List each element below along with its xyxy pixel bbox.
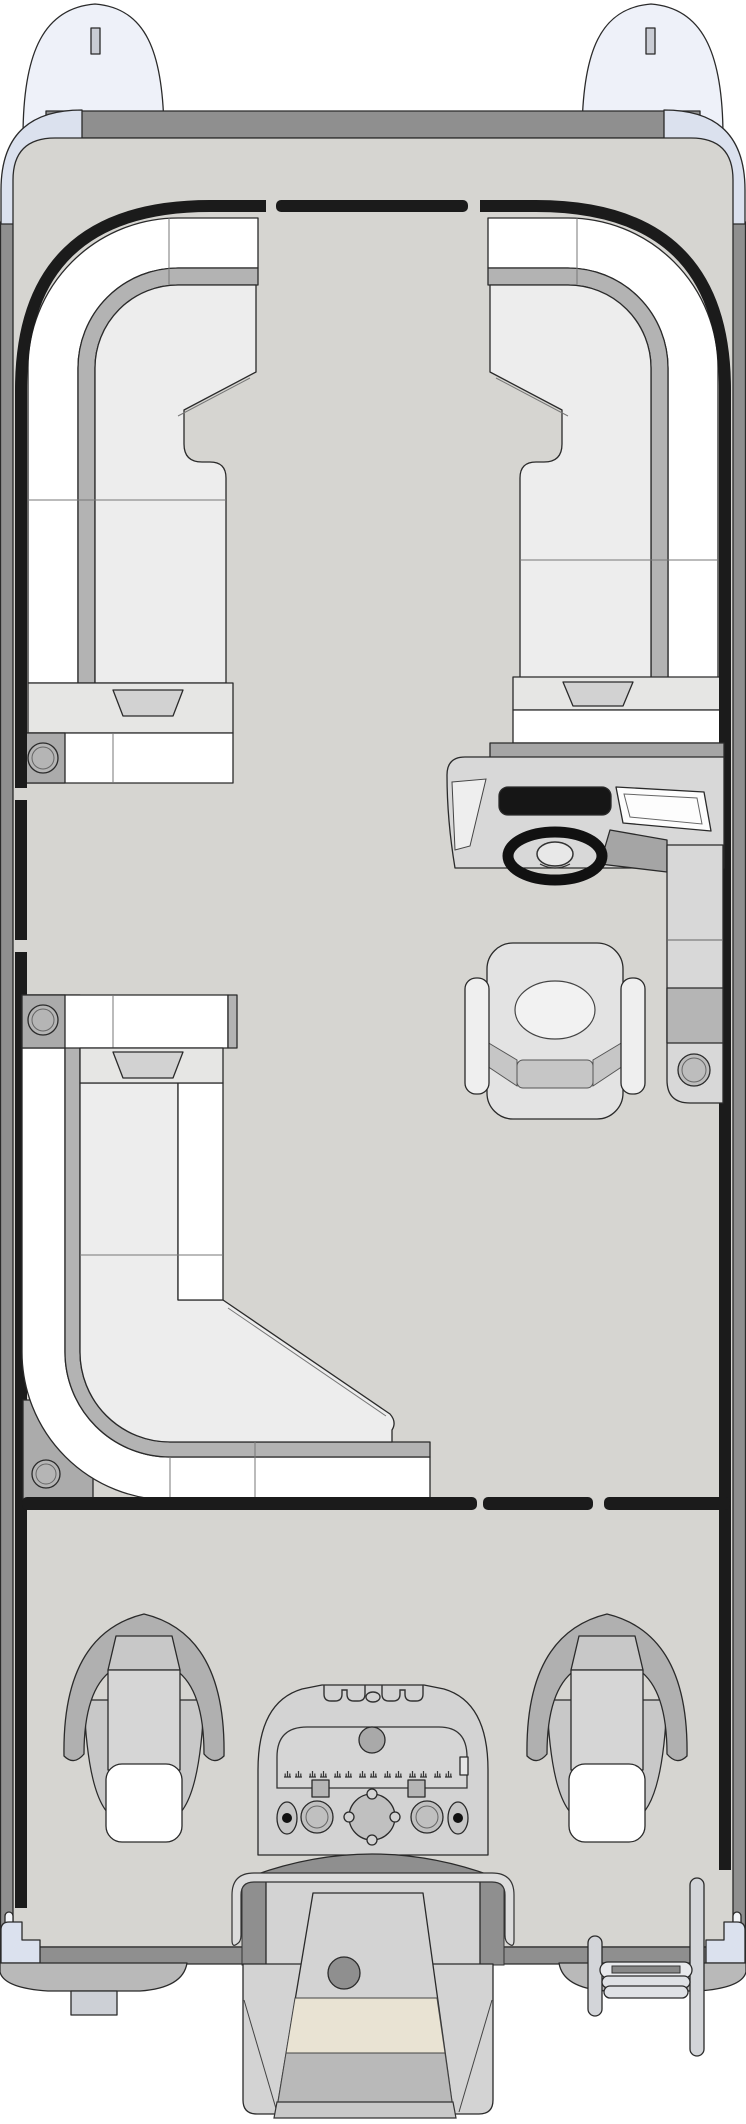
- bow-lounge-starboard-step: [563, 682, 633, 706]
- ladder-step-3: [604, 1986, 688, 1998]
- ladder-step-slot: [612, 1966, 680, 1973]
- motor-leg-band-beige: [286, 1998, 445, 2053]
- captain-chair-headrest: [515, 981, 595, 1039]
- bow-lounge-port-step: [113, 690, 183, 716]
- pontoon-tube-port: [1, 222, 14, 1963]
- aft-rail-segment-3: [604, 1497, 730, 1510]
- panel-latch: [460, 1757, 468, 1775]
- hub-notch-w: [344, 1812, 354, 1822]
- cowl-cap: [359, 1727, 385, 1753]
- hub-notch-e: [390, 1812, 400, 1822]
- aft-rail-segment-2: [483, 1497, 593, 1510]
- helm-console-top-band: [490, 743, 724, 758]
- fishing-seat-headrest: [108, 1636, 180, 1670]
- aft-gate-rails: [22, 1497, 730, 1510]
- motor-knob-left-dot: [282, 1813, 292, 1823]
- hub-notch-n: [367, 1789, 377, 1799]
- side-console: [667, 845, 723, 1103]
- midship-lounge-inner-edge: [178, 1083, 223, 1300]
- hub-notch-s: [367, 1835, 377, 1845]
- bow-deck-band: [46, 111, 700, 138]
- chair-armrest-right: [621, 978, 645, 1094]
- bow-lounge-starboard-endface: [513, 710, 724, 743]
- motor-foot: [274, 2102, 456, 2118]
- chair-seat-band: [517, 1060, 593, 1088]
- midship-lounge-step: [113, 1052, 183, 1078]
- dash-screen: [499, 787, 611, 815]
- bow-lounge-starboard: [488, 218, 724, 743]
- outboard-motor: [232, 1685, 514, 2118]
- ladder-rail-left: [588, 1936, 602, 2016]
- side-console-storage: [667, 988, 723, 1043]
- captain-chair: [465, 943, 645, 1119]
- motor-hub: [349, 1794, 395, 1840]
- fishing-seat-back: [108, 1670, 180, 1770]
- cleat-slot-starboard: [646, 28, 655, 54]
- fishing-seat-cushion: [106, 1764, 182, 1842]
- skeg-port: [71, 1991, 117, 2015]
- pontoon-floorplan-diagram: [0, 0, 746, 2124]
- bow-gate-rail: [276, 200, 468, 212]
- bow-lounge-port: [22, 218, 258, 783]
- pontoon-tube-starboard: [733, 222, 746, 1963]
- motor-knob-right-dot: [453, 1813, 463, 1823]
- cowl-clamp-left: [312, 1780, 329, 1797]
- cowl-clamp-right: [408, 1780, 425, 1797]
- cup-holder-icon: [678, 1054, 710, 1086]
- motor-leg-band-gray: [278, 2053, 452, 2102]
- chair-armrest-left: [465, 978, 489, 1094]
- midship-lounge-side-edge: [228, 995, 237, 1048]
- aft-rail-segment-1: [22, 1497, 477, 1510]
- cleat-slot-port: [91, 28, 100, 54]
- motor-leg-port-hole: [328, 1957, 360, 1989]
- stern-tube-end-port: [0, 1963, 187, 1991]
